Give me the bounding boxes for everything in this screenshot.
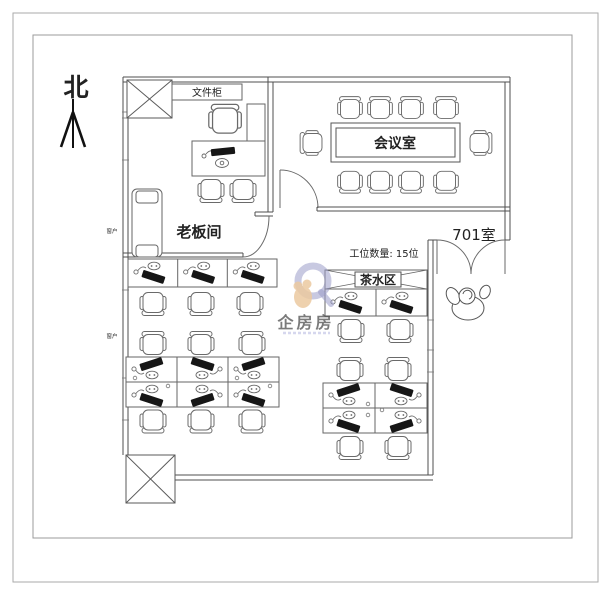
office-chair — [140, 293, 166, 316]
workstation-cluster-left — [126, 332, 279, 434]
meeting-room-door-icon — [280, 170, 318, 208]
guest-chair — [230, 180, 256, 203]
boss-desk — [192, 141, 265, 176]
column-top-left — [127, 80, 172, 118]
file-cabinet-label: 文件柜 — [192, 86, 222, 99]
tea-area: 茶水区 — [325, 270, 427, 289]
conference-chair — [434, 97, 459, 119]
office-chair — [188, 410, 214, 433]
office-chair — [385, 358, 411, 381]
boss-office-door-icon — [243, 216, 269, 257]
workstation-count-label: 工位数量: 15位 — [349, 247, 418, 260]
north-arrow-left-leg — [61, 112, 73, 147]
boss-office-label: 老板间 — [175, 223, 221, 241]
conference-chair — [399, 97, 424, 119]
executive-chair — [209, 104, 242, 133]
office-chair — [337, 437, 363, 460]
watermark-text: 企房房 — [276, 313, 334, 332]
office-chair — [140, 410, 166, 433]
north-indicator: 北 — [61, 73, 89, 148]
columns — [126, 80, 175, 503]
office-chair — [387, 320, 413, 343]
office-chair — [337, 358, 363, 381]
north-arrow-right-leg — [73, 112, 85, 147]
conference-chair — [399, 171, 424, 193]
person-figure — [443, 284, 492, 320]
conference-chair — [434, 171, 459, 193]
conference-chair — [300, 131, 322, 156]
office-chair — [237, 293, 263, 316]
sofa — [132, 189, 162, 257]
tea-area-label: 茶水区 — [359, 272, 396, 287]
watermark: 企房房 — [276, 266, 334, 333]
workstation-cluster-right — [323, 358, 427, 460]
north-label: 北 — [63, 73, 88, 102]
room-701-label: 701室 — [452, 226, 496, 244]
watermark-figure-icon — [294, 280, 313, 309]
conference-chair — [368, 171, 393, 193]
floor-plan-canvas: 北 窗户 窗户 — [0, 0, 615, 600]
office-chair — [338, 320, 364, 343]
conference-chair — [470, 131, 492, 156]
window-label-2: 窗户 — [106, 332, 117, 340]
column-bottom-left — [126, 455, 175, 503]
meeting-room-label: 会议室 — [374, 135, 416, 152]
floor-plan-page: 北 窗户 窗户 — [0, 0, 615, 600]
guest-chair — [198, 180, 224, 203]
entry-double-door-icon — [437, 240, 505, 274]
conference-chair — [368, 97, 393, 119]
office-chair — [239, 332, 265, 355]
office-chair — [385, 437, 411, 460]
office-chair — [239, 410, 265, 433]
meeting-room: 会议室 — [300, 97, 492, 194]
workstation-row-1 — [128, 259, 277, 316]
office-chair — [188, 332, 214, 355]
conference-chair — [338, 171, 363, 193]
office-chair — [140, 332, 166, 355]
office-chair — [188, 293, 214, 316]
conference-chair — [338, 97, 363, 119]
window-label-1: 窗户 — [106, 227, 117, 235]
workstation-row-tea — [325, 289, 427, 343]
